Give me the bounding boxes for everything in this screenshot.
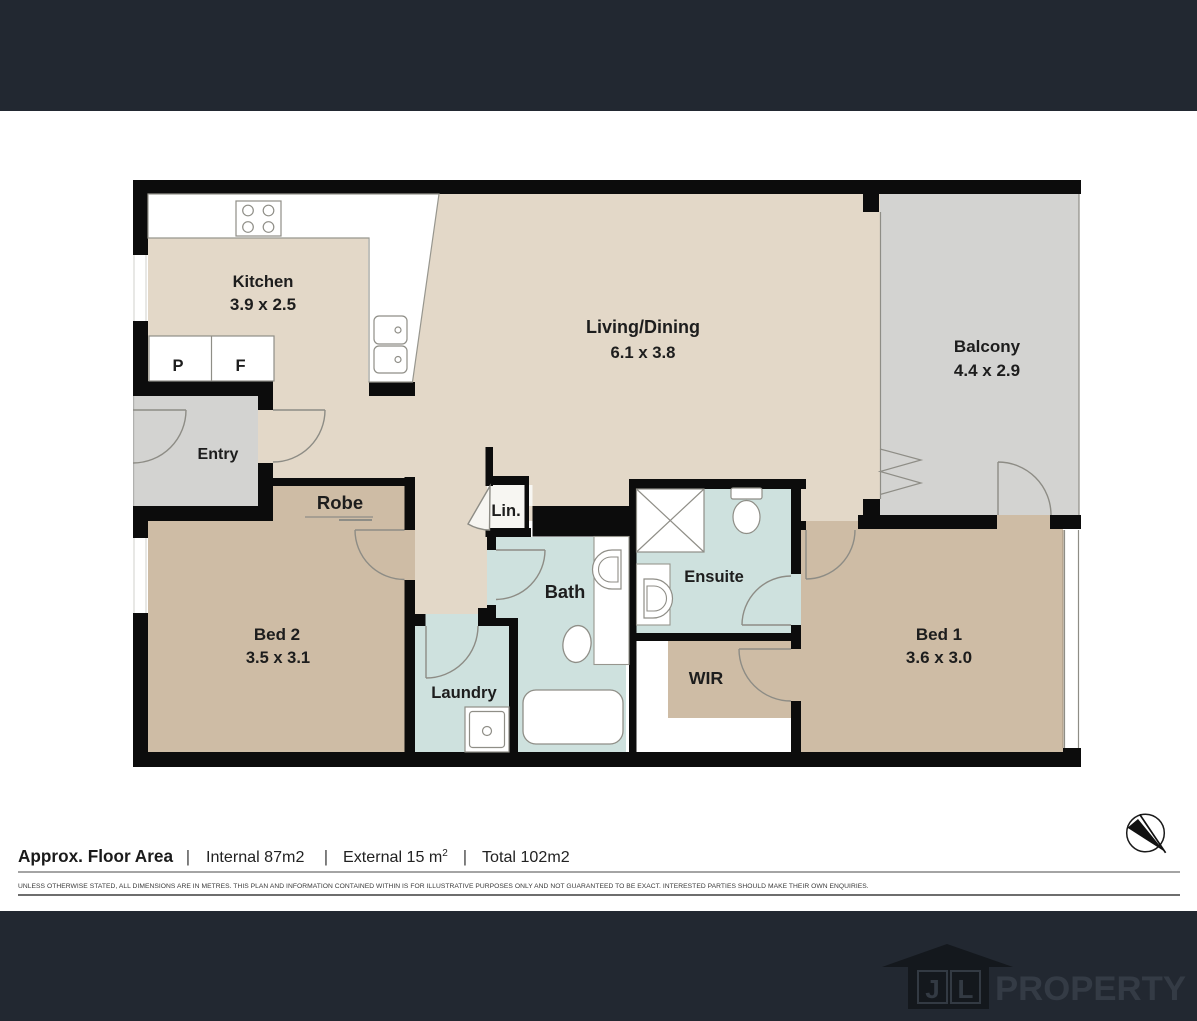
svg-text:4.4 x 2.9: 4.4 x 2.9 [954,361,1020,380]
svg-text:Kitchen: Kitchen [233,272,294,291]
svg-text:Living/Dining: Living/Dining [586,317,700,337]
svg-text:F: F [235,357,245,375]
svg-text:|: | [463,847,467,866]
svg-text:Laundry: Laundry [431,683,497,702]
svg-text:|: | [324,847,328,866]
svg-text:3.6 x 3.0: 3.6 x 3.0 [906,648,972,667]
svg-text:J: J [925,974,939,1004]
svg-text:Lin.: Lin. [491,502,520,520]
svg-text:Entry: Entry [198,446,239,463]
svg-text:6.1 x 3.8: 6.1 x 3.8 [611,343,676,362]
svg-text:Bath: Bath [545,581,586,602]
svg-text:External 15 m2: External 15 m2 [343,848,448,866]
svg-text:UNLESS OTHERWISE STATED, ALL D: UNLESS OTHERWISE STATED, ALL DIMENSIONS … [18,883,869,890]
svg-text:3.5 x 3.1: 3.5 x 3.1 [246,649,310,667]
svg-text:Ensuite: Ensuite [684,568,744,586]
svg-text:Balcony: Balcony [954,337,1021,356]
svg-text:Internal 87m2: Internal 87m2 [206,848,304,866]
svg-text:Robe: Robe [317,492,363,513]
svg-text:Bed 1: Bed 1 [916,625,962,644]
svg-text:3.9 x 2.5: 3.9 x 2.5 [230,295,296,314]
svg-text:P: P [172,357,183,375]
svg-text:Approx. Floor Area: Approx. Floor Area [18,846,173,866]
svg-text:Total 102m2: Total 102m2 [482,848,570,866]
svg-text:Bed 2: Bed 2 [254,625,300,644]
svg-text:WIR: WIR [689,668,724,688]
svg-text:PROPERTY: PROPERTY [995,970,1186,1008]
svg-text:L: L [958,974,974,1004]
svg-text:|: | [186,847,190,866]
